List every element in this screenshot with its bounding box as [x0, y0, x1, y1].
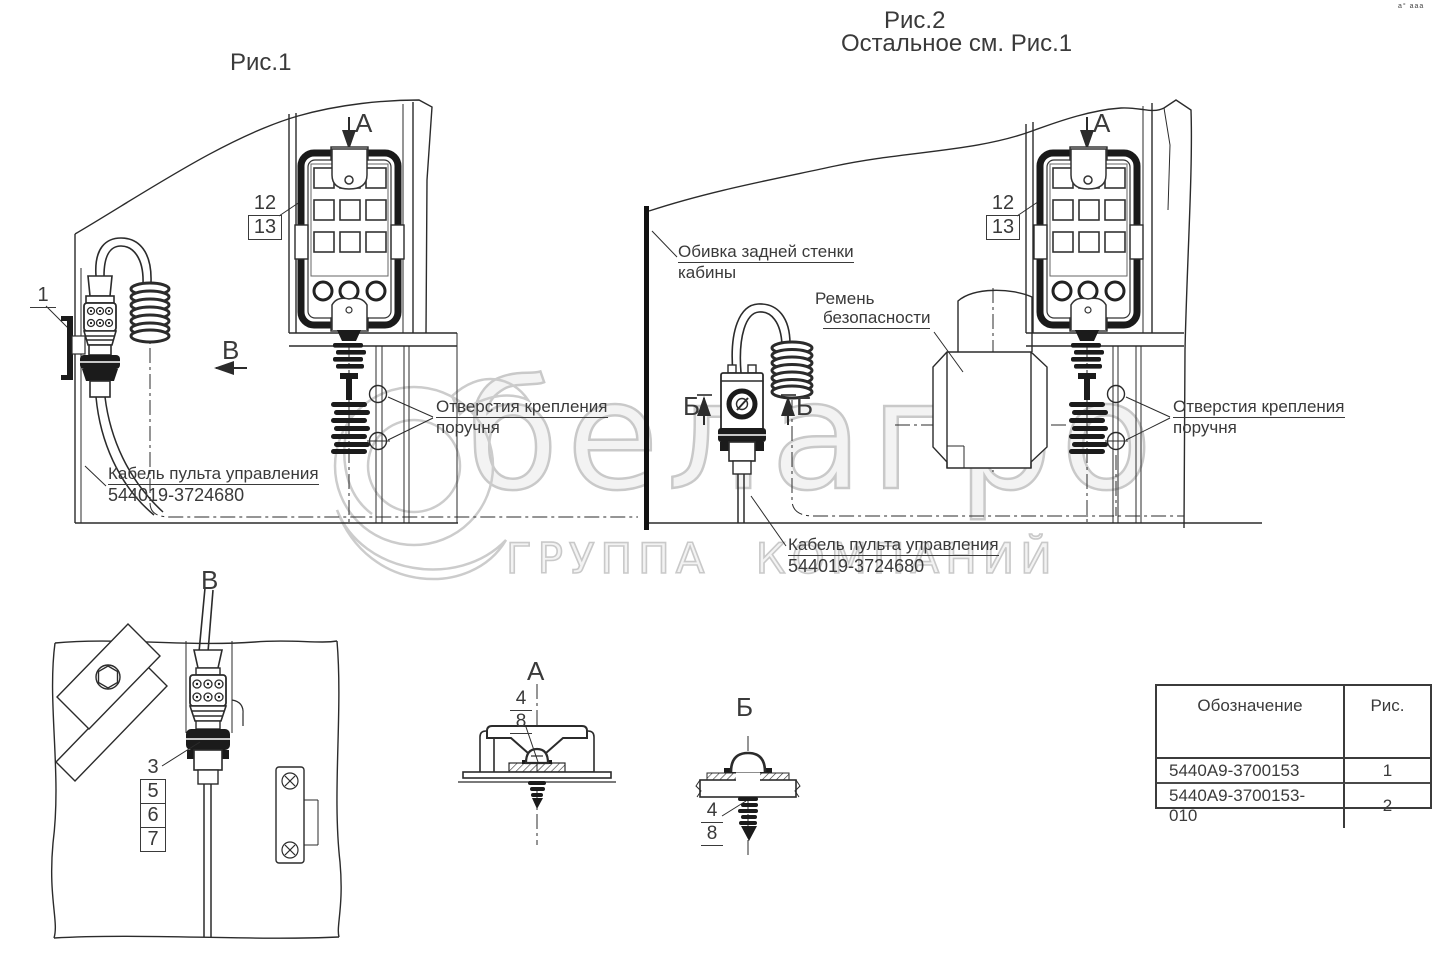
callout-4: 4 — [701, 800, 723, 823]
callout-6: 6 — [140, 804, 166, 828]
view-a-title: А — [527, 657, 544, 686]
drawing-canvas: белагро ГРУППА КОМПАНИЙ — [0, 0, 1434, 961]
header-fig: Рис. — [1345, 686, 1430, 757]
view-b-title: В — [201, 566, 218, 595]
coiled-cable — [131, 283, 169, 342]
callout-4: 4 — [510, 688, 532, 711]
cell-fig: 2 — [1345, 784, 1430, 828]
figure2-linework — [644, 100, 1262, 546]
figure2-belt-label: Ремень безопасности — [815, 289, 930, 329]
view-b-linework — [52, 588, 341, 938]
figure1-view-a-label: А — [355, 109, 372, 138]
seat-belt-block — [933, 290, 1047, 468]
handrail-screw-spring — [331, 373, 370, 454]
view-b2-title: Б — [736, 693, 753, 722]
screw-tip — [528, 781, 546, 809]
callout-8: 8 — [701, 823, 723, 846]
rear-wall-trim-edge — [644, 206, 649, 530]
parts-table-header: Обозначение Рис. — [1157, 686, 1430, 759]
callout-13: 13 — [248, 216, 282, 240]
figure1-callout-12-13: 12 13 — [248, 192, 282, 240]
figure2-subtitle: Остальное см. Рис.1 — [841, 31, 1072, 58]
figure2-cable-label: Кабель пульта управления 544019-3724680 — [788, 535, 999, 576]
coiled-cable — [772, 342, 812, 398]
figure1-title: Рис.1 — [230, 50, 291, 77]
handrail-screw-spring — [1069, 373, 1108, 454]
figure1-view-b-label: В — [222, 336, 239, 365]
parts-table: Обозначение Рис. 5440A9-3700153 1 5440A9… — [1155, 684, 1432, 809]
figure1-callout-1: 1 — [30, 284, 56, 308]
control-panel-bracket — [1034, 147, 1143, 331]
figure2-view-b-label-right: Б — [796, 392, 813, 421]
control-panel-bracket — [295, 147, 404, 331]
cell-designation: 5440A9-3700153-010 — [1157, 784, 1345, 828]
figure2-callout-12-13: 12 13 — [986, 192, 1020, 240]
callout-12: 12 — [986, 192, 1020, 216]
view-a-linework — [458, 684, 616, 845]
callout-7: 7 — [140, 828, 166, 852]
figure2-trim-label: Обивка задней стенки кабины — [678, 242, 854, 282]
table-row: 5440A9-3700153-010 2 — [1157, 784, 1430, 807]
cell-designation: 5440A9-3700153 — [1157, 759, 1345, 783]
header-designation: Обозначение — [1157, 686, 1345, 757]
figure1-cable-label: Кабель пульта управления 544019-3724680 — [108, 464, 319, 505]
callout-3: 3 — [140, 756, 166, 780]
figure2-view-b-label-left: Б — [683, 392, 700, 421]
callout-1: 1 — [30, 284, 56, 308]
view-b2-callout-4-8: 4 8 — [701, 800, 723, 846]
connector-front-view — [186, 588, 230, 937]
cell-fig: 1 — [1345, 759, 1430, 783]
figure1-linework — [46, 100, 638, 523]
table-row: 5440A9-3700153 1 — [1157, 759, 1430, 784]
view-b-callouts: 3 5 6 7 — [140, 756, 166, 852]
corner-marks: а° ааа — [1398, 3, 1424, 10]
callout-8: 8 — [510, 711, 532, 734]
callout-5: 5 — [140, 780, 166, 804]
callout-12: 12 — [248, 192, 282, 216]
figure2-view-a-label: А — [1093, 109, 1110, 138]
figure1-holes-label: Отверстия крепления поручня — [436, 397, 608, 437]
figure2-holes-label: Отверстия крепления поручня — [1173, 397, 1345, 437]
callout-13: 13 — [986, 216, 1020, 240]
view-a-callout-4-8: 4 8 — [510, 688, 532, 734]
